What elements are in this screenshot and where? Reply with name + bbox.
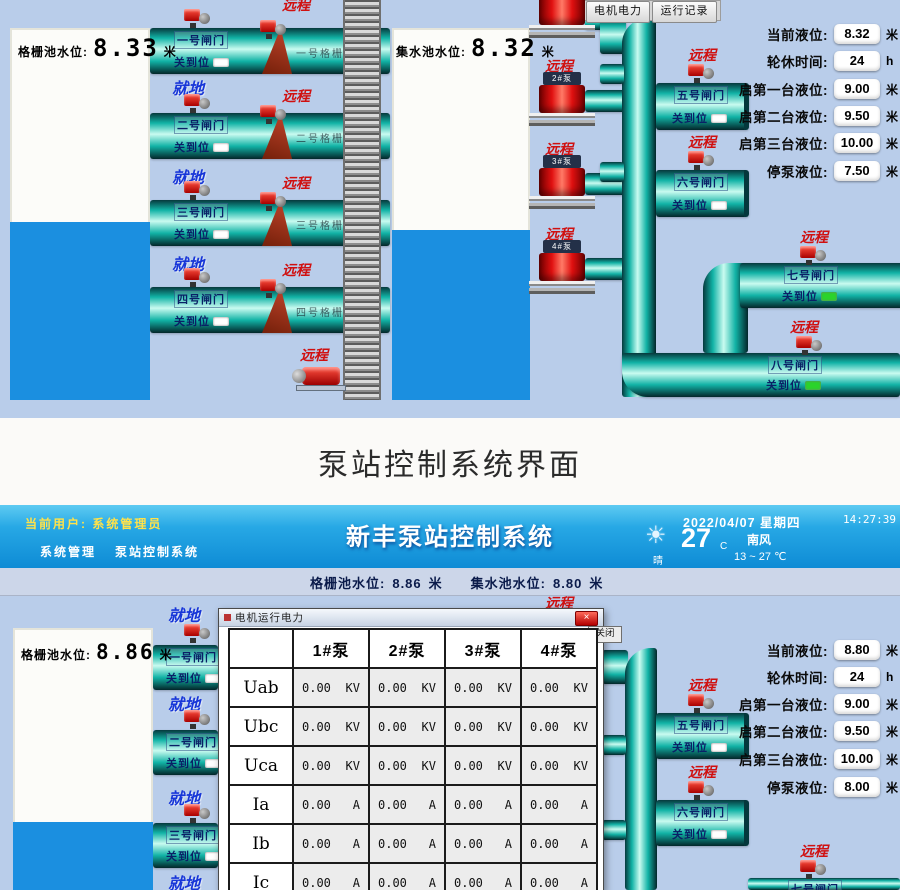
screenshot-canvas: 电机电力 运行记录 格栅池水位:8.33米 集水池水位:8.32米 一号闸门 关…: [0, 0, 900, 890]
unit: KV: [574, 759, 588, 773]
valve-actuator-icon[interactable]: [684, 149, 714, 169]
value: 0.00: [454, 837, 483, 851]
sump-level: 集水池水位:8.32米: [396, 34, 554, 62]
grid-pool-value: 8.86: [96, 640, 155, 664]
gate-name: 六号闸门: [674, 803, 728, 821]
pump-body: [539, 85, 585, 113]
column-header: 2#泵: [369, 629, 445, 668]
grid-pool-level: 格栅池水位:8.86米: [21, 640, 172, 664]
pump-1[interactable]: 1#泵: [537, 0, 587, 38]
panel-row-start2-level: 启第二台液位:9.50米: [660, 721, 898, 741]
unit: A: [581, 837, 588, 851]
screw-conveyor: [343, 0, 381, 400]
valve-actuator-icon[interactable]: [796, 858, 826, 878]
closed-indicator-green: [805, 381, 821, 390]
unit: KV: [498, 681, 512, 695]
current-user-label: 当前用户:: [25, 517, 87, 531]
grid-pool-tank: 格栅池水位:8.86米: [13, 628, 153, 890]
panel-unit: 米: [886, 642, 898, 659]
panel-label: 启第二台液位:: [660, 106, 828, 126]
unit: A: [505, 798, 512, 812]
grid-pool-unit: 米: [164, 45, 176, 59]
pump-stub-pipe: [585, 258, 625, 280]
closed-label: 关到位: [166, 670, 202, 686]
panel-value-box[interactable]: 24: [834, 51, 880, 71]
pump-flange: [529, 25, 595, 38]
pump-2[interactable]: 2#泵: [537, 72, 587, 126]
grid-pool-label: 格栅池水位:: [18, 45, 88, 59]
pipe-gate-7: 七号闸门 关到位: [740, 263, 900, 308]
value: 0.00: [302, 681, 331, 695]
branch-stub: [602, 735, 626, 755]
local-label: 就地: [168, 870, 200, 890]
table-row: Uca 0.00KV 0.00KV 0.00KV 0.00KV: [229, 746, 597, 785]
remote-label: 远程: [282, 86, 310, 106]
panel-label: 启第三台液位:: [660, 749, 828, 769]
menu-pump-station-control[interactable]: 泵站控制系统: [115, 543, 199, 560]
dialog-title: 电机运行电力: [235, 610, 304, 625]
value: 0.00: [530, 837, 559, 851]
level-status-bar: 格栅池水位: 8.86 米 集水池水位: 8.80 米: [0, 568, 900, 596]
pump-flange: [529, 113, 595, 126]
header-pipe: [622, 18, 656, 397]
closed-label: 关到位: [672, 197, 708, 213]
param-cell: Uca: [229, 746, 293, 785]
value: 0.00: [378, 876, 407, 890]
gate-name: 七号闸门: [784, 266, 838, 284]
closed-label: 关到位: [166, 755, 202, 771]
column-header: 4#泵: [521, 629, 597, 668]
panel-row-current-level: 当前液位:8.80米: [660, 640, 898, 660]
panel-value-box[interactable]: 10.00: [834, 133, 880, 153]
panel-unit: 米: [886, 26, 898, 43]
unit: A: [429, 876, 436, 890]
sump-value: 8.32: [471, 34, 537, 62]
gate-name: 二号闸门: [166, 733, 220, 751]
grid-machine-actuator-icon[interactable]: [256, 277, 286, 297]
table-row: Ic 0.00A 0.00A 0.00A 0.00A: [229, 863, 597, 890]
header-blank-cell: [229, 629, 293, 668]
grid-level-label: 格栅池水位:: [310, 573, 385, 592]
grid-machine-actuator-icon[interactable]: [256, 190, 286, 210]
branch-stub: [600, 162, 624, 182]
closed-indicator-green: [821, 292, 837, 301]
value: 0.00: [302, 720, 331, 734]
temperature-range: 13 ~ 27 ℃: [734, 550, 786, 563]
panel-label: 启第一台液位:: [660, 79, 828, 99]
grid-pool-label: 格栅池水位:: [21, 648, 91, 662]
sump-level-label: 集水池水位:: [471, 573, 546, 592]
sun-icon: ☀: [645, 521, 667, 550]
grid-machine-actuator-icon[interactable]: [256, 103, 286, 123]
value: 0.00: [378, 837, 407, 851]
value: 0.00: [454, 720, 483, 734]
gate-name: 三号闸门: [166, 826, 220, 844]
value: 0.00: [530, 759, 559, 773]
pump-name: 2#泵: [543, 72, 581, 85]
unit: A: [429, 798, 436, 812]
value: 0.00: [530, 681, 559, 695]
panel-value-box[interactable]: 8.00: [834, 777, 880, 797]
unit: KV: [346, 681, 360, 695]
temperature-unit: C: [720, 541, 727, 552]
panel-unit: 米: [886, 135, 898, 152]
gate-name: 一号闸门: [166, 648, 220, 666]
panel-unit: h: [886, 54, 893, 68]
pump-name: 4#泵: [543, 240, 581, 253]
column-header: 1#泵: [293, 629, 369, 668]
value: 0.00: [454, 681, 483, 695]
unit: KV: [422, 759, 436, 773]
panel-row-current-level: 当前液位:8.32米: [660, 24, 898, 44]
remote-label: 远程: [282, 260, 310, 280]
valve-actuator-icon[interactable]: [180, 622, 210, 642]
value: 0.00: [454, 759, 483, 773]
current-user-name: 系统管理员: [92, 517, 162, 531]
unit: KV: [574, 681, 588, 695]
wind-direction: 南风: [747, 531, 771, 548]
unit: A: [581, 798, 588, 812]
closed-label: 关到位: [166, 848, 202, 864]
panel-label: 当前液位:: [660, 24, 828, 44]
panel-label: 启第二台液位:: [660, 721, 828, 741]
param-cell: Ia: [229, 785, 293, 824]
clock-display: 14:27:39: [843, 513, 896, 526]
valve-actuator-icon[interactable]: [796, 244, 826, 264]
closed-label: 关到位: [174, 313, 210, 329]
pump-body: [539, 0, 585, 25]
menu-system-management[interactable]: 系统管理: [40, 543, 96, 560]
weather-condition: 晴: [653, 552, 663, 567]
run-log-button[interactable]: 运行记录: [652, 1, 717, 23]
panel-value-box[interactable]: 9.00: [834, 79, 880, 99]
panel-unit: 米: [886, 108, 898, 125]
panel-unit: 米: [886, 81, 898, 98]
valve-actuator-icon[interactable]: [684, 692, 714, 712]
grid-pool-value: 8.33: [93, 34, 159, 62]
value: 0.00: [454, 876, 483, 890]
panel-value-box[interactable]: 9.00: [834, 694, 880, 714]
gate-name: 八号闸门: [768, 356, 822, 374]
valve-actuator-icon[interactable]: [792, 334, 822, 354]
water-level-fill: [392, 230, 530, 400]
panel-row-start3-level: 启第三台液位:10.00米: [660, 749, 898, 769]
closed-indicator: [213, 317, 229, 326]
valve-actuator-icon[interactable]: [180, 802, 210, 822]
grid-level-value: 8.86: [392, 576, 421, 591]
panel-value-box[interactable]: 9.50: [834, 106, 880, 126]
closed-label: 关到位: [766, 377, 802, 393]
panel-value-box[interactable]: 10.00: [834, 749, 880, 769]
pipe-gate-3: 三号闸门 关到位: [153, 823, 218, 868]
panel-row-start2-level: 启第二台液位:9.50米: [660, 106, 898, 126]
gate-name: 七号闸门: [788, 880, 842, 890]
grid-pool-tank: 格栅池水位:8.33米: [10, 28, 150, 400]
valve-actuator-icon[interactable]: [180, 7, 210, 27]
sump-level-value: 8.80: [553, 576, 582, 591]
panel-unit: 米: [886, 163, 898, 180]
remote-label: 远程: [282, 173, 310, 193]
closed-label: 关到位: [174, 226, 210, 242]
param-cell: Ib: [229, 824, 293, 863]
caption-text: 泵站控制系统界面: [318, 440, 582, 484]
grid-level-unit: 米: [429, 573, 443, 592]
closed-label: 关到位: [782, 288, 818, 304]
closed-indicator: [213, 230, 229, 239]
unit: KV: [422, 720, 436, 734]
pump-flange: [529, 196, 595, 209]
valve-actuator-icon[interactable]: [180, 708, 210, 728]
table-row: Ia 0.00A 0.00A 0.00A 0.00A: [229, 785, 597, 824]
sump-level-unit: 米: [589, 573, 603, 592]
unit: A: [429, 837, 436, 851]
grid-machine-actuator-icon[interactable]: [256, 18, 286, 38]
value: 0.00: [530, 876, 559, 890]
pipe-gate-8: 八号闸门 关到位: [622, 353, 900, 397]
pipe-gate-2: 二号闸门 关到位: [153, 730, 218, 775]
sump-label: 集水池水位:: [396, 45, 466, 59]
temperature-value: 27: [681, 523, 711, 554]
grid-pool-level: 格栅池水位:8.33米: [18, 34, 176, 62]
table-row: Ubc 0.00KV 0.00KV 0.00KV 0.00KV: [229, 707, 597, 746]
value: 0.00: [302, 798, 331, 812]
gate-name: 一号闸门: [174, 31, 228, 49]
unit: A: [353, 798, 360, 812]
value: 0.00: [378, 720, 407, 734]
param-cell: Ic: [229, 863, 293, 890]
app-title: 新丰泵站控制系统: [330, 517, 570, 552]
dialog-icon: [224, 614, 231, 621]
value: 0.00: [530, 798, 559, 812]
unit: A: [505, 876, 512, 890]
grid-pool-unit: 米: [160, 648, 172, 662]
current-user: 当前用户: 系统管理员: [25, 515, 162, 532]
table-header-row: 1#泵 2#泵 3#泵 4#泵: [229, 629, 597, 668]
screw-motor-icon[interactable]: [292, 367, 344, 391]
table-row: Ib 0.00A 0.00A 0.00A 0.00A: [229, 824, 597, 863]
unit: KV: [422, 681, 436, 695]
motor-power-dialog: 电机运行电力 × 关闭 1#泵 2#泵 3#泵 4#泵 Uab 0.00KV 0…: [218, 608, 604, 890]
column-header: 3#泵: [445, 629, 521, 668]
panel-row-rotation-time: 轮休时间:24h: [660, 667, 893, 687]
pump-name: 3#泵: [543, 155, 581, 168]
close-icon[interactable]: ×: [575, 611, 598, 626]
remote-label: 远程: [300, 345, 328, 365]
param-cell: Ubc: [229, 707, 293, 746]
unit: KV: [574, 720, 588, 734]
value: 0.00: [378, 798, 407, 812]
caption-band: 泵站控制系统界面: [0, 418, 900, 505]
panel-value-box[interactable]: 9.50: [834, 721, 880, 741]
level-readouts: 格栅池水位: 8.86 米 集水池水位: 8.80 米: [310, 573, 603, 592]
panel-unit: 米: [886, 779, 898, 796]
remote-label: 远程: [282, 0, 310, 15]
pump-3[interactable]: 3#泵: [537, 155, 587, 209]
gate-name: 四号闸门: [174, 290, 228, 308]
closed-label: 关到位: [174, 139, 210, 155]
valve-actuator-icon[interactable]: [180, 179, 210, 199]
unit: A: [505, 837, 512, 851]
dialog-titlebar[interactable]: 电机运行电力: [219, 609, 603, 627]
motor-power-button[interactable]: 电机电力: [586, 1, 650, 23]
value: 0.00: [378, 759, 407, 773]
unit: A: [353, 876, 360, 890]
pump-body: [539, 253, 585, 281]
valve-actuator-icon[interactable]: [180, 266, 210, 286]
water-level-fill: [10, 222, 150, 400]
valve-actuator-icon[interactable]: [684, 62, 714, 82]
pipe-gate-7: 七号闸门: [748, 878, 900, 890]
closed-indicator: [213, 58, 229, 67]
branch-stub: [600, 64, 624, 84]
value: 0.00: [302, 759, 331, 773]
closed-label: 关到位: [672, 826, 708, 842]
pump-stub-pipe: [585, 90, 625, 112]
panel-unit: 米: [886, 696, 898, 713]
closed-indicator: [711, 830, 727, 839]
closed-indicator: [213, 143, 229, 152]
valve-actuator-icon[interactable]: [684, 779, 714, 799]
closed-indicator: [711, 201, 727, 210]
gate-name: 三号闸门: [174, 203, 228, 221]
panel-label: 当前液位:: [660, 640, 828, 660]
pipe-gate-6: 六号闸门 关到位: [656, 800, 749, 846]
unit: A: [581, 876, 588, 890]
unit: KV: [498, 759, 512, 773]
app-header: 当前用户: 系统管理员 系统管理 泵站控制系统 新丰泵站控制系统 ☀ 晴 202…: [0, 505, 900, 568]
pump-flange: [529, 281, 595, 294]
panel-value-box: 8.32: [834, 24, 880, 44]
value: 0.00: [378, 681, 407, 695]
pump-body: [539, 168, 585, 196]
panel-unit: 米: [886, 751, 898, 768]
value: 0.00: [302, 876, 331, 890]
branch-stub: [602, 820, 626, 840]
panel-value-box[interactable]: 7.50: [834, 161, 880, 181]
panel-unit: h: [886, 670, 893, 684]
panel-value-box[interactable]: 24: [834, 667, 880, 687]
value: 0.00: [530, 720, 559, 734]
value: 0.00: [302, 837, 331, 851]
valve-actuator-icon[interactable]: [180, 92, 210, 112]
unit: A: [353, 837, 360, 851]
water-level-fill: [13, 822, 153, 890]
motor-power-table: 1#泵 2#泵 3#泵 4#泵 Uab 0.00KV 0.00KV 0.00KV…: [228, 628, 598, 890]
param-cell: Uab: [229, 668, 293, 707]
gate-name: 二号闸门: [174, 116, 228, 134]
unit: KV: [498, 720, 512, 734]
header-pipe: [625, 648, 657, 890]
unit: KV: [346, 720, 360, 734]
weekday-text: 星期四: [760, 516, 801, 530]
pump-4[interactable]: 4#泵: [537, 240, 587, 294]
table-row: Uab 0.00KV 0.00KV 0.00KV 0.00KV: [229, 668, 597, 707]
unit: KV: [346, 759, 360, 773]
panel-unit: 米: [886, 723, 898, 740]
value: 0.00: [454, 798, 483, 812]
closed-label: 关到位: [174, 54, 210, 70]
sump-tank: 集水池水位:8.32米: [392, 28, 530, 400]
panel-value-box: 8.80: [834, 640, 880, 660]
panel-label: 轮休时间:: [660, 667, 828, 687]
